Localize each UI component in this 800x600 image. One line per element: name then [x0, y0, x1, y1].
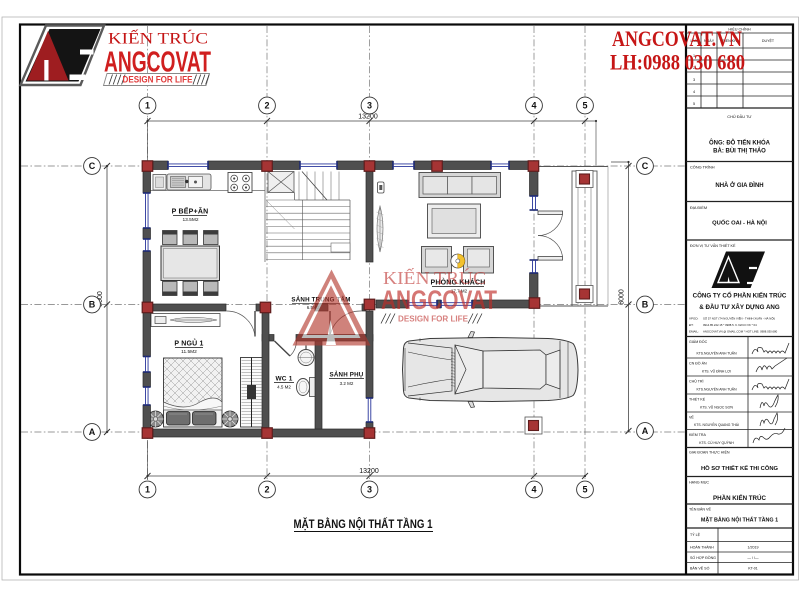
svg-text:4: 4	[531, 485, 536, 495]
svg-text:KTS.NGUYỄN ANH TUẤN: KTS.NGUYỄN ANH TUẤN	[696, 387, 737, 392]
svg-text:& ĐẦU TƯ XÂY DỰNG ANG: & ĐẦU TƯ XÂY DỰNG ANG	[699, 304, 780, 311]
svg-text:— / /—: — / /—	[747, 556, 759, 560]
svg-text:MẶT BẰNG NỘI THẤT TẦNG 1: MẶT BẰNG NỘI THẤT TẦNG 1	[294, 518, 434, 531]
svg-text:LH:0988 030 680: LH:0988 030 680	[610, 50, 745, 75]
svg-text:SẢNH PHỤ: SẢNH PHỤ	[330, 372, 364, 379]
svg-text:ĐT:: ĐT:	[689, 323, 694, 327]
svg-text:BẢN VẼ SỐ: BẢN VẼ SỐ	[690, 566, 710, 571]
svg-text:WC 1: WC 1	[275, 376, 292, 383]
svg-text:5: 5	[582, 101, 587, 111]
svg-text:KTS.NGUYỄN ANH TUẤN: KTS.NGUYỄN ANH TUẤN	[696, 351, 737, 356]
svg-text:B: B	[642, 300, 649, 310]
svg-text:HẠNG MỤC: HẠNG MỤC	[689, 481, 709, 485]
svg-text:4.5 M2: 4.5 M2	[277, 385, 291, 390]
svg-text:ĐƠN VỊ TƯ VẤN THIẾT KẾ: ĐƠN VỊ TƯ VẤN THIẾT KẾ	[690, 243, 736, 248]
svg-text:3: 3	[693, 78, 695, 82]
svg-text:GIÁM ĐỐC: GIÁM ĐỐC	[689, 339, 708, 344]
svg-text:QUỐC OAI - HÀ NỘI: QUỐC OAI - HÀ NỘI	[712, 219, 767, 227]
svg-text:2: 2	[264, 485, 269, 495]
svg-text:KT-01: KT-01	[748, 567, 758, 571]
svg-text:VẼ: VẼ	[689, 415, 694, 420]
svg-text:13200: 13200	[358, 114, 378, 121]
svg-text:DESIGN FOR LIFE: DESIGN FOR LIFE	[398, 314, 468, 324]
svg-text:HỒ SƠ THIẾT KẾ THI CÔNG: HỒ SƠ THIẾT KẾ THI CÔNG	[701, 464, 779, 472]
svg-text:3: 3	[367, 485, 372, 495]
svg-text:KTS. CÙ HUY QUỲNH: KTS. CÙ HUY QUỲNH	[699, 440, 734, 445]
svg-text:2: 2	[264, 101, 269, 111]
svg-text:0914.85.222.15 * 0988.5. 6. 62: 0914.85.222.15 * 0988.5. 6. 62/CO VK * 0…	[703, 323, 757, 327]
svg-text:1: 1	[145, 485, 150, 495]
svg-text:PHẦN KIẾN TRÚC: PHẦN KIẾN TRÚC	[713, 495, 766, 502]
svg-text:ÔNG: ĐỖ TIẾN KHÓA: ÔNG: ĐỖ TIẾN KHÓA	[709, 139, 771, 147]
svg-text:NHÀ Ở GIA ĐÌNH: NHÀ Ở GIA ĐÌNH	[715, 181, 763, 189]
svg-text:MẶT BẰNG NỘI THẤT TẦNG 1: MẶT BẰNG NỘI THẤT TẦNG 1	[701, 516, 778, 524]
svg-text:ANGCOVAT.VN: ANGCOVAT.VN	[612, 26, 742, 51]
svg-text:CN ĐỒ ÁN: CN ĐỒ ÁN	[689, 361, 707, 366]
svg-text:3.2 M2: 3.2 M2	[340, 381, 354, 386]
svg-text:DUYỆT: DUYỆT	[762, 38, 775, 43]
svg-text:HOÀN THÀNH: HOÀN THÀNH	[690, 546, 714, 550]
svg-text:A: A	[642, 426, 649, 436]
svg-text:ANGCOVAT: ANGCOVAT	[381, 285, 497, 315]
svg-text:1: 1	[145, 101, 150, 111]
svg-text:C: C	[642, 161, 649, 171]
svg-text:4: 4	[531, 101, 536, 111]
svg-text:A: A	[89, 427, 96, 437]
svg-text:5: 5	[693, 102, 695, 106]
svg-text:THIẾT KẾ: THIẾT KẾ	[689, 397, 706, 402]
svg-text:KIẾN TRÚC: KIẾN TRÚC	[108, 31, 208, 48]
svg-text:ANGCOVAT.VN @ GMAIL.COM * HOT: ANGCOVAT.VN @ GMAIL.COM * HOT LINE: 0988…	[703, 330, 778, 334]
svg-text:4: 4	[693, 90, 695, 94]
svg-text:SỐ 57 NGT (T4 NGUYỄN VIỄN - T: SỐ 57 NGT (T4 NGUYỄN VIỄN - THINH XUÂN -…	[703, 316, 775, 321]
svg-text:KIỂM TRA: KIỂM TRA	[689, 432, 707, 437]
svg-text:KTS. VŨ NGỌC SƠN: KTS. VŨ NGỌC SƠN	[700, 405, 733, 410]
svg-text:P NGỦ 1: P NGỦ 1	[174, 339, 203, 348]
svg-text:1/2019: 1/2019	[748, 546, 759, 550]
svg-text:ĐỊA ĐIỂM: ĐỊA ĐIỂM	[690, 205, 707, 210]
svg-text:C: C	[89, 161, 96, 171]
svg-text:KTS. VŨ ĐÌNH LỢI: KTS. VŨ ĐÌNH LỢI	[702, 369, 731, 374]
svg-text:11.5M2: 11.5M2	[181, 349, 197, 355]
svg-text:VPGD:: VPGD:	[689, 317, 699, 321]
svg-text:TỶ LỆ: TỶ LỆ	[690, 532, 701, 537]
svg-text:8000: 8000	[619, 289, 626, 305]
svg-text:GIAI ĐOẠN THỰC HIỆN: GIAI ĐOẠN THỰC HIỆN	[689, 450, 730, 455]
svg-text:TÊN BẢN VẼ: TÊN BẢN VẼ	[689, 507, 711, 512]
svg-text:3: 3	[367, 101, 372, 111]
svg-text:13200: 13200	[359, 468, 379, 475]
svg-text:CÔNG TY CỔ PHẦN KIẾN TRÚC: CÔNG TY CỔ PHẦN KIẾN TRÚC	[693, 292, 787, 300]
svg-text:KTS. NGUYỄN QUANG THÁI: KTS. NGUYỄN QUANG THÁI	[694, 422, 739, 427]
svg-text:B: B	[89, 300, 96, 310]
svg-text:BÀ: BÙI THỊ THẢO: BÀ: BÙI THỊ THẢO	[713, 148, 766, 155]
svg-text:CHỦ ĐẦU TƯ: CHỦ ĐẦU TƯ	[727, 114, 752, 119]
svg-text:DESIGN FOR LIFE: DESIGN FOR LIFE	[123, 75, 193, 85]
svg-text:SỐ HỢP ĐỒNG: SỐ HỢP ĐỒNG	[690, 555, 716, 560]
svg-text:5: 5	[582, 485, 587, 495]
svg-text:13.5M2: 13.5M2	[183, 217, 199, 223]
svg-text:EMAIL:: EMAIL:	[689, 330, 699, 334]
svg-text:CHỦ TRÌ: CHỦ TRÌ	[689, 379, 704, 384]
svg-text:CÔNG TRÌNH: CÔNG TRÌNH	[690, 165, 715, 170]
